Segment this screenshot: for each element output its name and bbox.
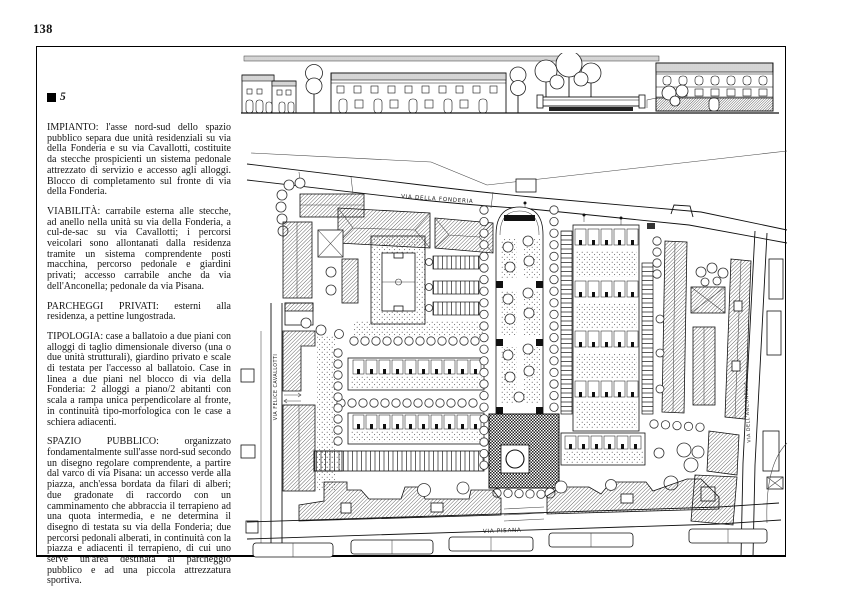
text-column: 5 IMPIANTO: l'asse nord-sud dello spazio… — [47, 91, 231, 595]
elevation-tree — [306, 65, 323, 114]
center-rowhouse-block — [314, 321, 485, 471]
datum-band — [244, 56, 659, 61]
tree-row — [650, 420, 704, 432]
street-label-cavallotti: VIA FELICE CAVALLOTTI — [273, 354, 279, 421]
site-plan-drawing: VIA DELLA FONDERIA VIA FELICE CAVALLOTTI… — [239, 149, 789, 558]
tree-column — [334, 349, 342, 445]
tree-row — [493, 489, 545, 499]
book-page: 138 5 IMPIANTO: l'asse nord-sud dello sp… — [0, 0, 842, 595]
sports-court — [371, 236, 425, 324]
elevation-palazzo — [656, 63, 773, 111]
paragraph-impianto: IMPIANTO: l'asse nord-sud dello spazio p… — [47, 123, 231, 198]
elevation-terrace-row — [331, 73, 506, 113]
central-axis — [496, 207, 543, 414]
elevation-planter-wall — [537, 95, 661, 111]
section-square-icon — [47, 93, 56, 102]
section-number: 5 — [60, 91, 66, 103]
axis-tree-row-west — [480, 206, 488, 470]
elevation-house-left — [242, 75, 296, 113]
elevation-tree — [510, 67, 526, 113]
content-frame: 5 IMPIANTO: l'asse nord-sud dello spazio… — [36, 46, 786, 557]
elevation-drawing — [241, 53, 787, 119]
section-marker: 5 — [47, 91, 231, 103]
house-units-row — [575, 229, 638, 245]
house-units-row — [575, 381, 638, 397]
tree-cluster — [696, 263, 728, 286]
tree-row — [350, 337, 479, 345]
house-units-row — [575, 331, 638, 347]
paragraph-spazio-pubblico: SPAZIO PUBBLICO: organizzato fondamental… — [47, 437, 231, 587]
paragraph-viabilita: VIABILITÀ: carrabile esterna alle stecch… — [47, 207, 231, 293]
tree-row — [337, 399, 477, 407]
street-label-fonderia: VIA DELLA FONDERIA — [401, 194, 474, 205]
paragraph-tipologia: TIPOLOGIA: case a ballatoio a due piani … — [47, 332, 231, 428]
axis-tree-row-east — [550, 206, 558, 412]
house-units-row — [575, 281, 638, 297]
parking-combs — [426, 256, 480, 315]
terraced-steps — [314, 451, 484, 471]
tree-column — [653, 237, 661, 278]
paragraph-parcheggi: PARCHEGGI PRIVATI: esterni alla residenz… — [47, 302, 231, 323]
east-rowhouse-block — [561, 214, 661, 432]
anconella-buildings — [656, 241, 751, 419]
page-number: 138 — [33, 22, 53, 37]
street-label-pisana: VIA PISANA — [483, 528, 522, 535]
